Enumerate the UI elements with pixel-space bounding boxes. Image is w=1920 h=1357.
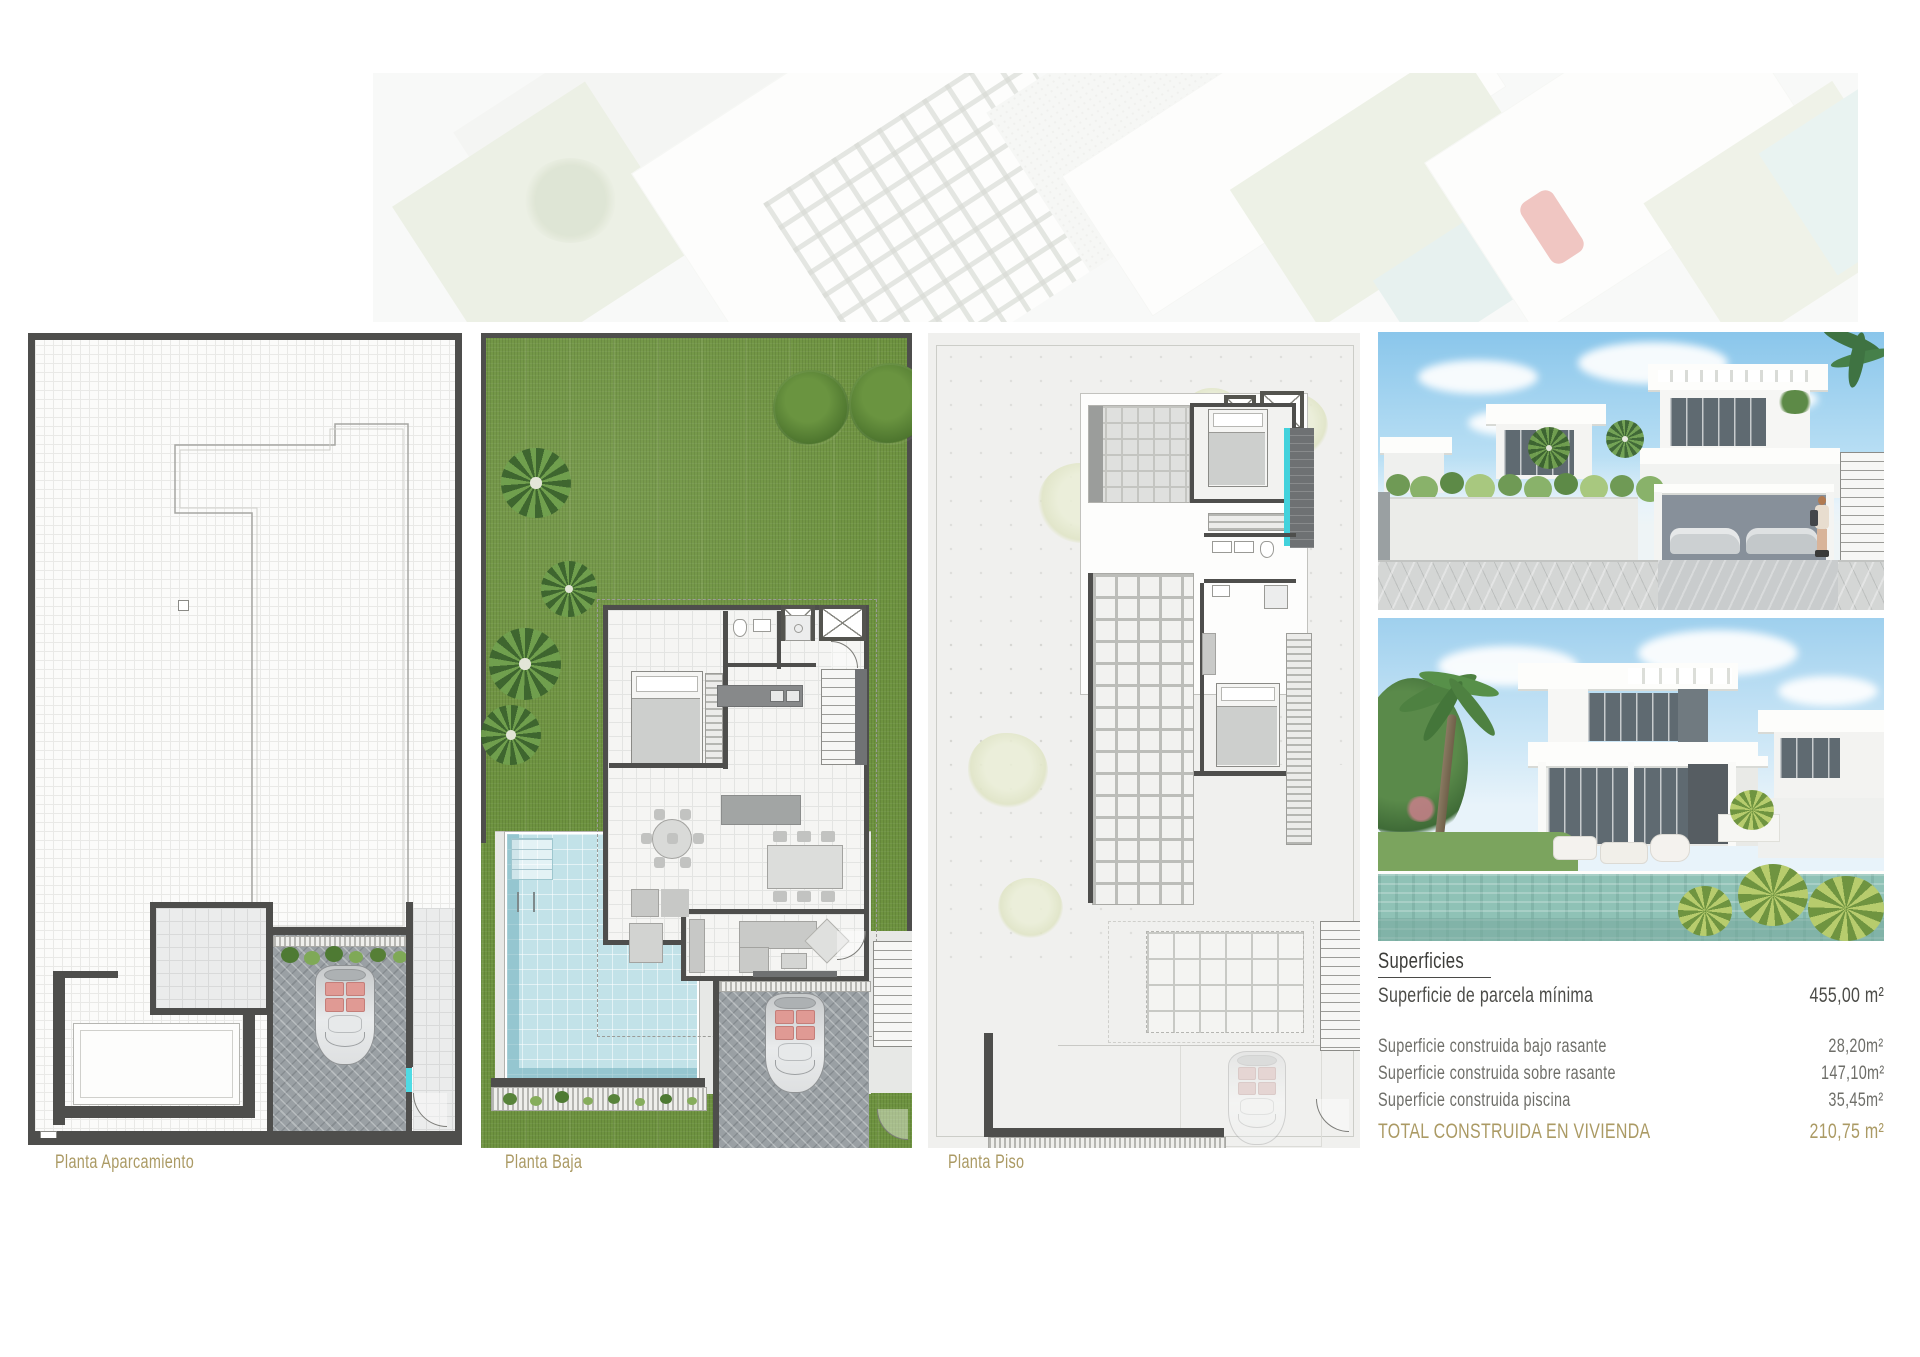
villa-left-roof bbox=[1380, 437, 1452, 453]
p3-faint-tree-2 bbox=[968, 733, 1048, 808]
bed-blanket bbox=[632, 698, 700, 765]
p2-exterior-stairs bbox=[873, 941, 912, 1047]
car-roof bbox=[1240, 1098, 1274, 1115]
bed-upper-1 bbox=[1208, 409, 1268, 487]
side-table bbox=[689, 919, 705, 973]
planter-greenery-row bbox=[281, 947, 299, 963]
car-roof bbox=[778, 1043, 813, 1061]
p3-stair-shadow bbox=[1290, 428, 1314, 548]
car-seats bbox=[325, 982, 365, 1012]
bed-double bbox=[631, 671, 703, 767]
sink bbox=[753, 619, 771, 632]
lounge-sofa bbox=[1553, 836, 1597, 860]
p2-wall-left bbox=[481, 333, 486, 843]
plan-label-upper-text: Planta Piso bbox=[948, 1152, 1024, 1174]
trellis-strip bbox=[273, 936, 408, 947]
planter-plant bbox=[1730, 790, 1774, 830]
surfaces-row-label-2-text: Superficie construida sobre rasante bbox=[1378, 1063, 1616, 1085]
p3-closet-column bbox=[1286, 633, 1312, 845]
bed1-pillow bbox=[1213, 413, 1263, 427]
villa-mid-roof bbox=[1486, 404, 1606, 424]
surfaces-row-value-3: 35,45m² bbox=[1811, 1090, 1884, 1112]
surfaces-row-value-3-text: 35,45m² bbox=[1829, 1090, 1884, 1112]
garden-palm bbox=[501, 448, 571, 518]
surfaces-row-value-2-text: 147,10m² bbox=[1821, 1063, 1884, 1085]
figure-head bbox=[1818, 496, 1826, 505]
bed2-blanket bbox=[1217, 706, 1277, 765]
pool-plant-row bbox=[503, 1093, 517, 1105]
car-seats bbox=[775, 1010, 815, 1040]
p3-boundary-wall-h bbox=[984, 1128, 1224, 1137]
villa2-upper-glass bbox=[1588, 693, 1678, 741]
drain-box bbox=[178, 600, 189, 611]
garden-palm-4 bbox=[481, 705, 541, 765]
storage-wall-right bbox=[266, 902, 273, 1015]
p2-driveway-wall bbox=[713, 981, 719, 1148]
p3-faint-tree-3 bbox=[998, 878, 1063, 938]
kitchen-hob bbox=[786, 690, 800, 702]
pool-side-wall bbox=[491, 1078, 705, 1087]
sofa-l-shape bbox=[739, 921, 817, 949]
floor-plan-parking bbox=[28, 333, 462, 1145]
surfaces-panel: Superficies Superficie de parcela mínima… bbox=[1378, 948, 1884, 1154]
villa-render-street bbox=[1378, 332, 1884, 610]
lounge-daybed bbox=[1650, 834, 1690, 862]
p3-boundary-wall-v bbox=[984, 1033, 993, 1137]
figure-legs bbox=[1817, 529, 1827, 551]
sofa-leg bbox=[739, 947, 769, 973]
pool-steps bbox=[511, 838, 553, 880]
surfaces-row-value-text: 28,20m² bbox=[1829, 1036, 1884, 1058]
surfaces-title-text: Superficies bbox=[1378, 948, 1464, 974]
p2-inner-wall-h2 bbox=[728, 663, 816, 667]
p3-desk bbox=[1202, 633, 1216, 675]
storage-room bbox=[156, 908, 266, 1008]
surfaces-main-value: 455,00 m² bbox=[1786, 984, 1884, 1008]
car-seats bbox=[1238, 1067, 1276, 1095]
stair-void bbox=[855, 669, 867, 765]
garden-palm-3 bbox=[489, 628, 561, 700]
patio-inner-paving bbox=[73, 1023, 240, 1105]
kitchen-counter bbox=[717, 685, 803, 707]
kitchen-island bbox=[721, 795, 801, 825]
lounge-sofa-2 bbox=[1600, 842, 1648, 864]
p2-inner-wall-h bbox=[609, 763, 727, 768]
plan-label-upper: Planta Piso bbox=[948, 1152, 1049, 1174]
interior-stairs bbox=[821, 669, 857, 765]
cloud bbox=[1418, 360, 1538, 394]
p3-solarium-dark-strip bbox=[1089, 406, 1103, 502]
villa2-pergola-hint bbox=[1628, 668, 1732, 684]
toilet bbox=[733, 619, 747, 637]
car-roof bbox=[328, 1015, 363, 1033]
patio-inner-outline bbox=[80, 1030, 233, 1098]
pedestrian-figure bbox=[1810, 496, 1832, 558]
surfaces-main-value-text: 455,00 m² bbox=[1809, 984, 1884, 1008]
surfaces-total-value: 210,75 m² bbox=[1786, 1120, 1884, 1144]
storage-wall-top bbox=[150, 902, 272, 908]
foreground-plant bbox=[1738, 864, 1808, 926]
garden-tree bbox=[773, 370, 849, 446]
foreground-plant-2 bbox=[1808, 876, 1884, 941]
p3-exterior-stairs bbox=[1320, 921, 1360, 1051]
plan-sheet-page: Planta Aparcamiento bbox=[0, 0, 1920, 1357]
cloud-7 bbox=[1778, 676, 1878, 706]
p3-vanity bbox=[1212, 585, 1230, 597]
floor-plan-ground bbox=[481, 333, 912, 1148]
pool-ladder-icon bbox=[517, 892, 535, 912]
car-trunk bbox=[324, 969, 366, 981]
storage-wall-left bbox=[150, 902, 156, 1015]
p2-driveway-trellis bbox=[719, 981, 871, 992]
carport-fascia bbox=[1654, 484, 1834, 493]
p3-drive-edge-line bbox=[1058, 1045, 1320, 1046]
patio-wall-left bbox=[53, 971, 65, 1125]
bougainvillea bbox=[1404, 796, 1438, 822]
bottom-notch bbox=[40, 1131, 57, 1141]
villa2-column-2 bbox=[1628, 762, 1634, 846]
surfaces-row-label: Superficie construida bajo rasante bbox=[1378, 1036, 1679, 1058]
ottoman bbox=[781, 953, 807, 969]
figure-bag bbox=[1810, 510, 1818, 526]
garden-palm-2 bbox=[541, 561, 597, 617]
driveway-pavers bbox=[1658, 560, 1838, 610]
villa2-neighbor-glass bbox=[1780, 738, 1840, 778]
shaft-box-2 bbox=[819, 605, 866, 641]
villa-right-glass bbox=[1670, 398, 1766, 446]
villa2-neighbor-roof bbox=[1758, 710, 1884, 732]
rect-table-chairs bbox=[773, 831, 787, 842]
shower bbox=[785, 615, 811, 641]
surfaces-row-label-3: Superficie construida piscina bbox=[1378, 1090, 1631, 1112]
patio-wall-bottom bbox=[53, 1106, 255, 1118]
villa2-glass-wall bbox=[1548, 768, 1688, 844]
lounge-chair bbox=[629, 923, 663, 963]
plan-label-ground-text: Planta Baja bbox=[505, 1152, 582, 1174]
p3-sink bbox=[1212, 541, 1232, 553]
surfaces-total-label-text: TOTAL CONSTRUIDA EN VIVIENDA bbox=[1378, 1120, 1650, 1144]
floor-plan-upper bbox=[928, 333, 1360, 1148]
figure-boots bbox=[1815, 550, 1829, 557]
street-palm-2 bbox=[1606, 420, 1644, 458]
p2-inner-wall-v2 bbox=[777, 611, 781, 669]
surfaces-main-label: Superficie de parcela mínima bbox=[1378, 984, 1661, 1008]
surfaces-total-value-text: 210,75 m² bbox=[1809, 1120, 1884, 1144]
shower-drain bbox=[794, 624, 803, 633]
villa-right-clerestory bbox=[1658, 370, 1808, 382]
side-room-wall bbox=[406, 902, 413, 1067]
plan-label-parking-text: Planta Aparcamiento bbox=[55, 1152, 194, 1174]
surfaces-title: Superficies bbox=[1378, 948, 1491, 978]
p3-shower bbox=[1264, 585, 1288, 609]
p3-pergola-wall bbox=[1088, 573, 1093, 903]
surfaces-row-label-3-text: Superficie construida piscina bbox=[1378, 1090, 1571, 1112]
surfaces-row-value-2: 147,10m² bbox=[1801, 1063, 1884, 1085]
car-top-view bbox=[315, 965, 375, 1065]
p3-bath-wall-2 bbox=[1204, 579, 1296, 583]
p3-closet-row bbox=[1208, 513, 1286, 531]
bed1-blanket bbox=[1209, 432, 1265, 485]
carport-column bbox=[1654, 492, 1662, 562]
rect-dining-table bbox=[767, 845, 843, 889]
street-palm bbox=[1528, 427, 1570, 469]
kitchen-sink bbox=[770, 690, 784, 702]
parked-car-2 bbox=[1746, 528, 1818, 554]
patio-wall-top bbox=[53, 971, 118, 978]
foreground-plant-3 bbox=[1678, 886, 1732, 936]
p3-ghost-car bbox=[1228, 1051, 1286, 1145]
parked-car bbox=[1670, 528, 1740, 554]
p3-bath-wall bbox=[1204, 533, 1296, 537]
balcony-plant bbox=[1776, 390, 1814, 414]
plan-label-parking: Planta Aparcamiento bbox=[55, 1152, 238, 1174]
pool-water-front bbox=[1378, 918, 1884, 941]
villa2-upper-white bbox=[1548, 689, 1588, 744]
surfaces-row-value: 28,20m² bbox=[1811, 1036, 1884, 1058]
patio-wall-right bbox=[243, 1013, 255, 1118]
render-stairs bbox=[1840, 452, 1884, 564]
p3-bedroom2-wall-left bbox=[1200, 583, 1204, 773]
p3-hatch-strip bbox=[988, 1137, 1226, 1148]
pool-hatch-strip bbox=[491, 1087, 707, 1111]
p3-pergola-grid bbox=[1092, 573, 1194, 905]
aerial-render-banner bbox=[373, 73, 1858, 322]
surfaces-row-label-text: Superficie construida bajo rasante bbox=[1378, 1036, 1607, 1058]
p2-car-top-view bbox=[765, 993, 825, 1093]
garden-tree-2 bbox=[849, 363, 912, 445]
villa-render-pool bbox=[1378, 618, 1884, 941]
surfaces-row-label-2: Superficie construida sobre rasante bbox=[1378, 1063, 1691, 1085]
cyan-marker bbox=[406, 1068, 412, 1092]
bottom-boundary-wall bbox=[35, 1131, 455, 1145]
armchairs bbox=[631, 889, 659, 917]
p3-pergola-dashed-outline bbox=[1108, 921, 1314, 1043]
banner-white-veil bbox=[373, 73, 1858, 322]
bed2-pillow bbox=[1221, 687, 1275, 701]
round-table-chairs bbox=[667, 833, 678, 844]
car-trunk bbox=[774, 997, 816, 1009]
p3-solarium-grid bbox=[1088, 405, 1190, 503]
p3-toilet bbox=[1260, 541, 1274, 558]
villa2-upper-frame bbox=[1678, 689, 1708, 744]
surfaces-total-label: TOTAL CONSTRUIDA EN VIVIENDA bbox=[1378, 1120, 1737, 1144]
bed-upper-2 bbox=[1216, 683, 1280, 767]
p2-wall-top bbox=[481, 333, 912, 338]
plan-label-ground: Planta Baja bbox=[505, 1152, 607, 1174]
bed-pillows bbox=[636, 676, 698, 692]
p2-gate-swing bbox=[877, 1109, 908, 1140]
surfaces-main-label-text: Superficie de parcela mínima bbox=[1378, 984, 1593, 1008]
car-trunk bbox=[1237, 1055, 1278, 1066]
p3-sink-2 bbox=[1234, 541, 1254, 553]
balcony-slab bbox=[1640, 448, 1840, 464]
tv-console bbox=[753, 971, 837, 977]
